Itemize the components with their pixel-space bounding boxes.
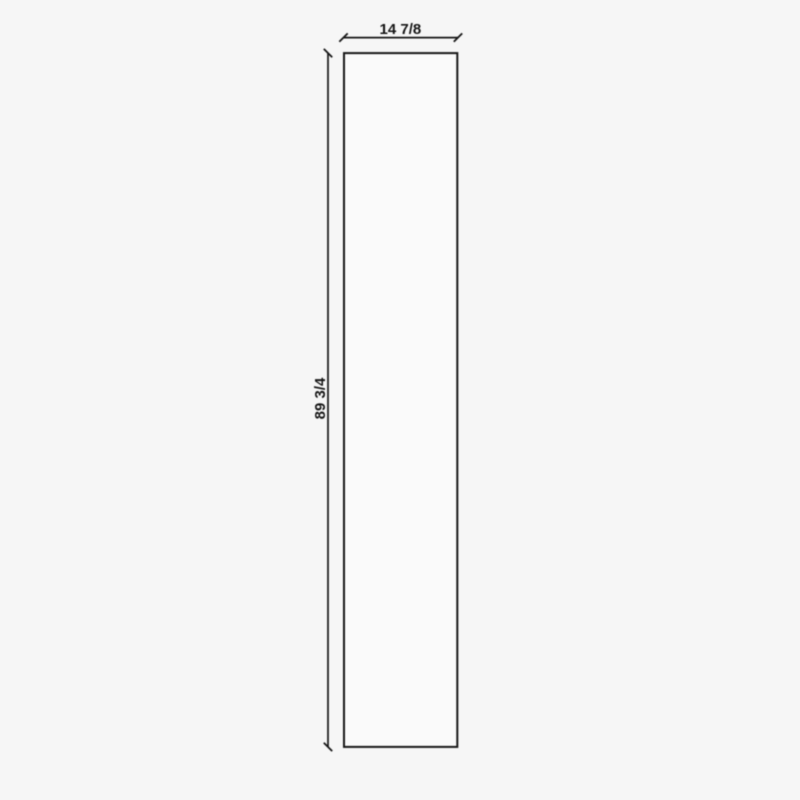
svg-text:89 3/4: 89 3/4 [312, 377, 329, 419]
svg-text:14 7/8: 14 7/8 [380, 21, 422, 38]
